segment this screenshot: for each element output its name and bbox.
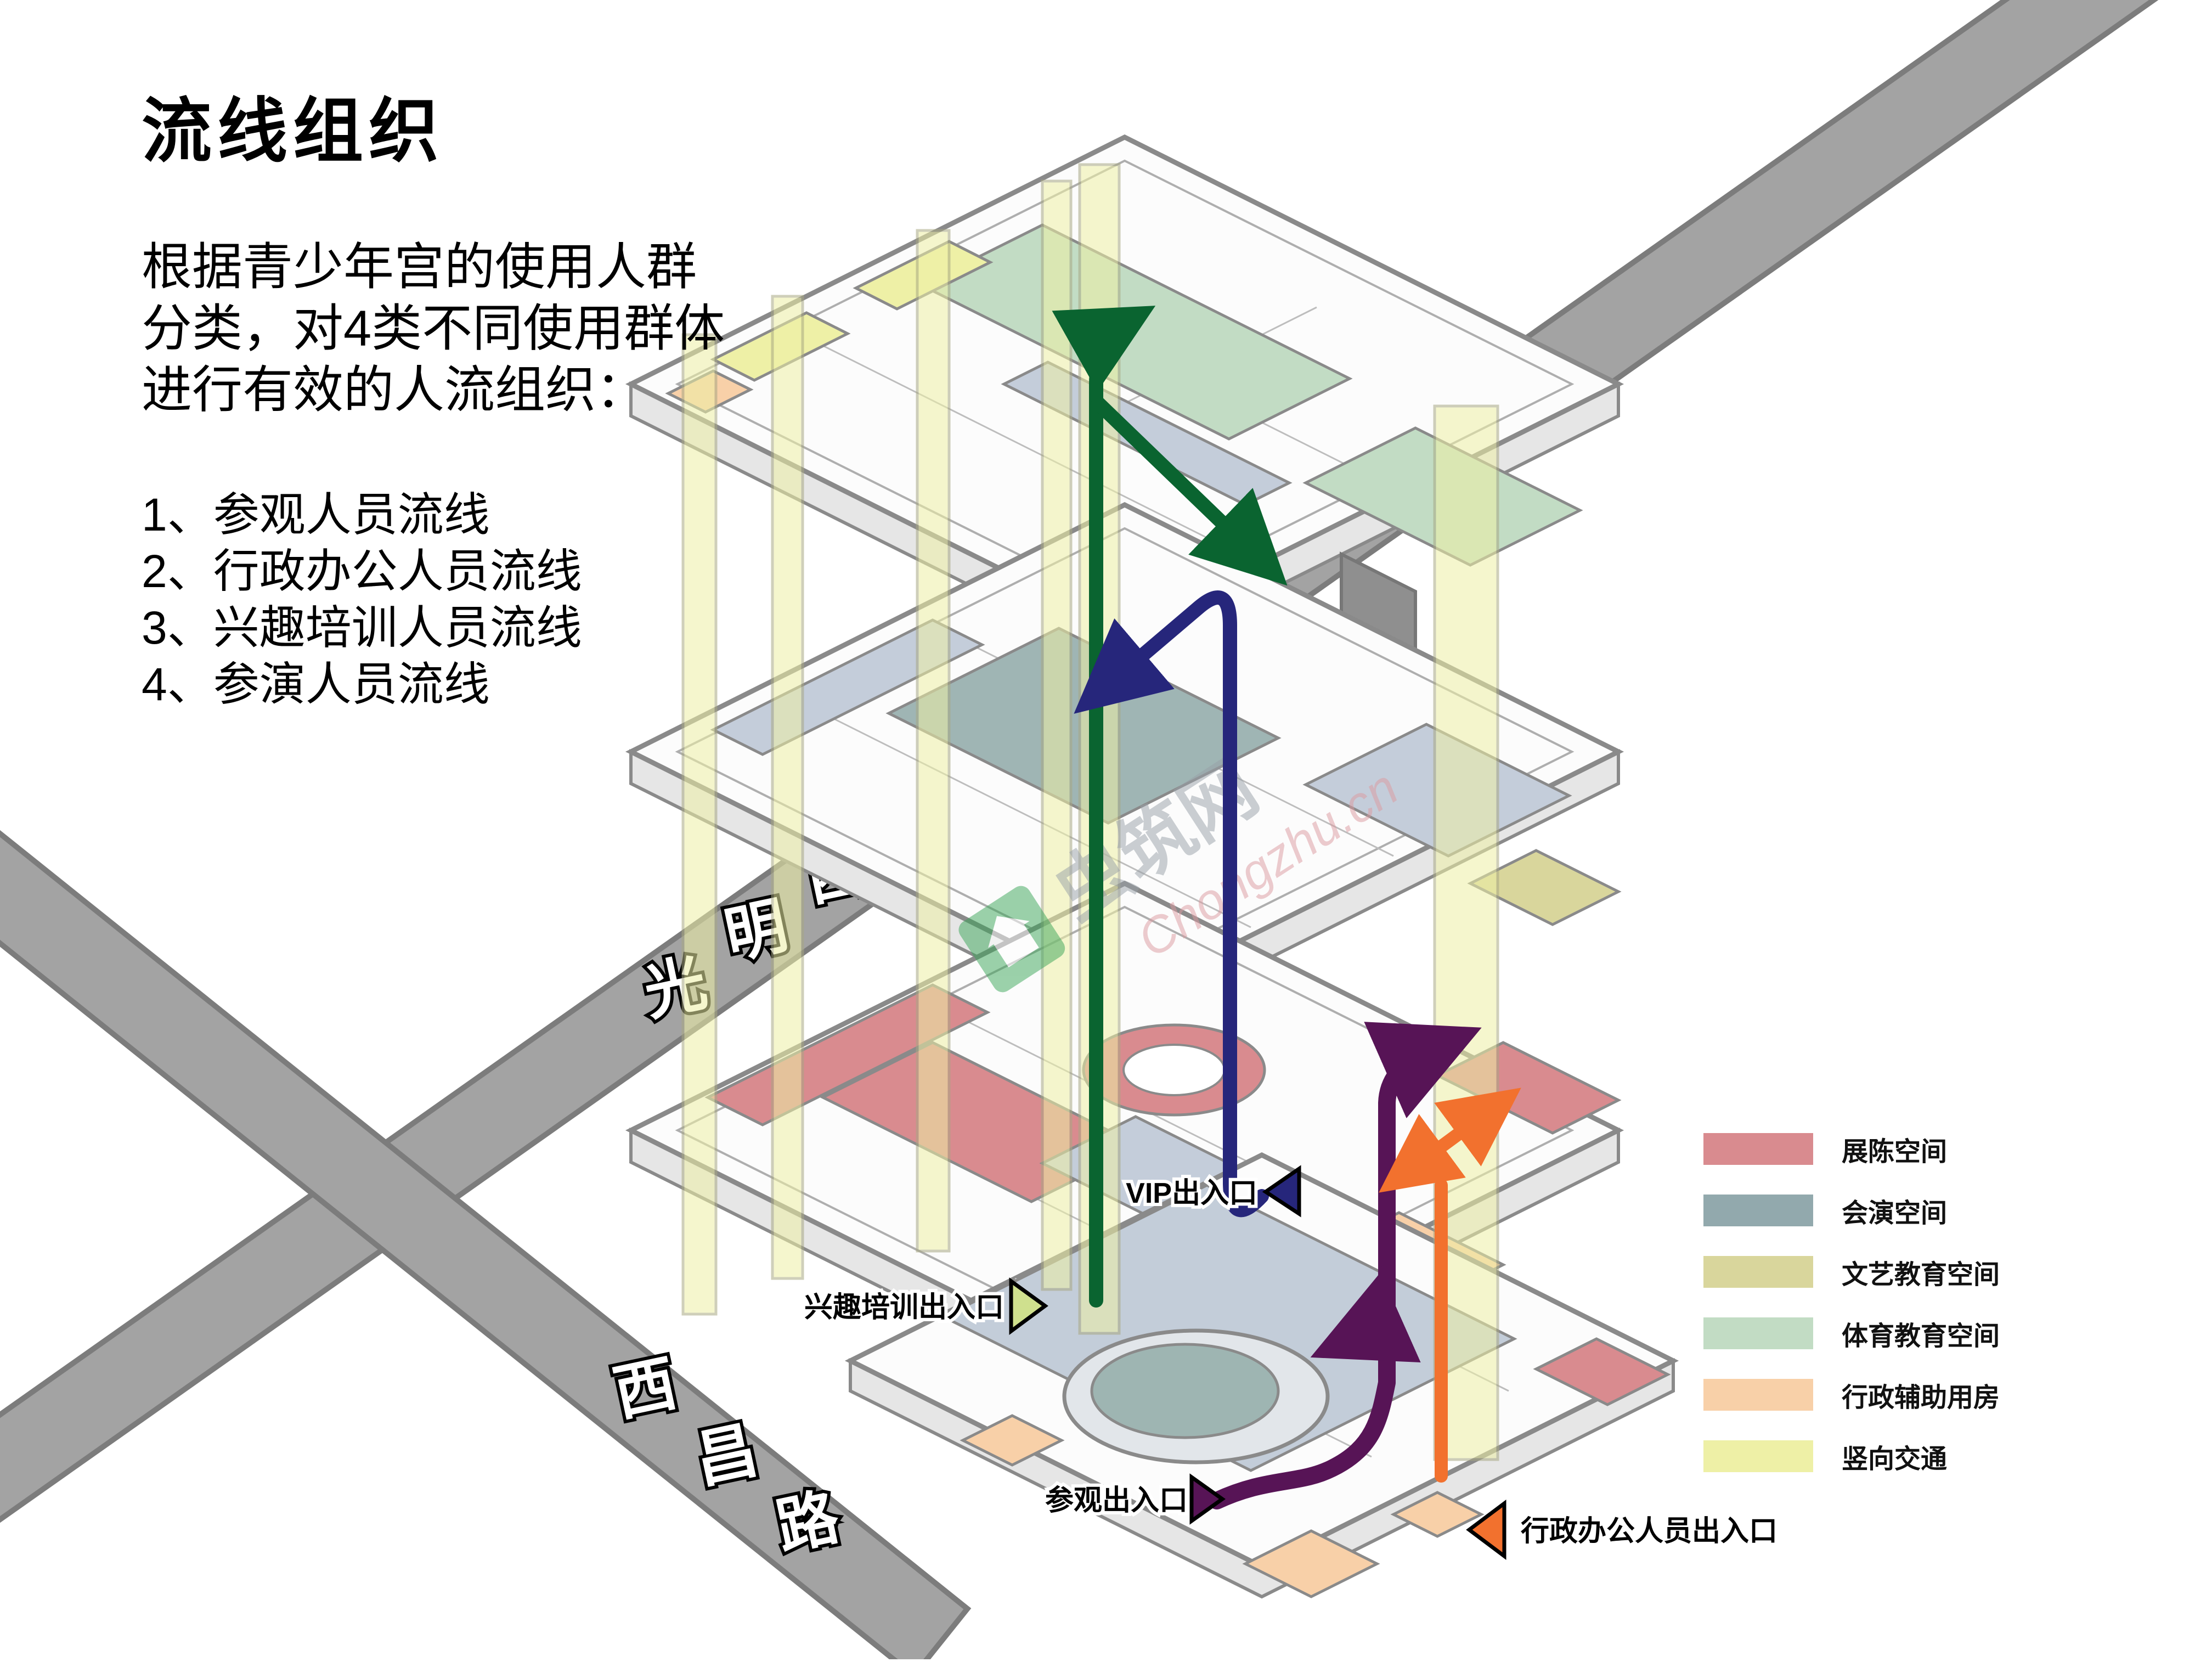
admin-entrance-label: 行政办公人员出入口 <box>1521 1515 1778 1547</box>
floor-1-theatre <box>1092 1344 1278 1438</box>
text-block: 流线组织 根据青少年宫的使用人群 分类，对4类不同使用群体 进行有效的人流组织：… <box>142 93 827 713</box>
legend-swatch-exhibition <box>1703 1133 1813 1165</box>
legend-item: 展陈空间 <box>1703 1133 2000 1165</box>
legend-item: 体育教育空间 <box>1703 1317 2000 1349</box>
intro-line: 进行有效的人流组织： <box>142 359 827 421</box>
list-item: 3、兴趣培训人员流线 <box>142 600 827 656</box>
circulation-diagram-page: 光 明 西 道 西 昌 路 <box>0 0 2212 1659</box>
flow-type-list: 1、参观人员流线 2、行政办公人员流线 3、兴趣培训人员流线 4、参演人员流线 <box>142 487 827 713</box>
legend-item: 会演空间 <box>1703 1195 2000 1226</box>
legend-swatch-sports-education <box>1703 1317 1813 1349</box>
interest-entrance-label: 兴趣培训出入口 <box>804 1292 1004 1323</box>
legend-item: 竖向交通 <box>1703 1440 2000 1472</box>
list-item: 4、参演人员流线 <box>142 656 827 713</box>
legend-label: 行政辅助用房 <box>1842 1376 2000 1414</box>
legend-swatch-arts-education <box>1703 1256 1813 1288</box>
legend-label: 展陈空间 <box>1842 1130 1947 1168</box>
vip-entrance-label: VIP出入口 <box>1126 1178 1257 1209</box>
legend-label: 体育教育空间 <box>1842 1314 2000 1353</box>
road-char: 路 <box>770 1482 845 1562</box>
floor-2-round-gallery-core <box>1124 1045 1224 1095</box>
legend-swatch-performance <box>1703 1195 1813 1226</box>
list-item: 1、参观人员流线 <box>142 487 827 543</box>
page-title: 流线组织 <box>142 93 827 171</box>
legend-label: 文艺教育空间 <box>1842 1253 2000 1291</box>
visitor-entrance-label: 参观出入口 <box>1045 1485 1188 1517</box>
legend-swatch-vertical-circulation <box>1703 1440 1813 1472</box>
legend-swatch-admin-rooms <box>1703 1379 1813 1411</box>
legend: 展陈空间 会演空间 文艺教育空间 体育教育空间 行政辅助用房 竖向交通 <box>1703 1133 2000 1502</box>
shaft <box>1042 181 1071 1289</box>
legend-item: 文艺教育空间 <box>1703 1256 2000 1288</box>
intro-line: 根据青少年宫的使用人群 <box>142 236 827 298</box>
list-item: 2、行政办公人员流线 <box>142 543 827 600</box>
intro-paragraph: 根据青少年宫的使用人群 分类，对4类不同使用群体 进行有效的人流组织： <box>142 236 827 421</box>
legend-label: 会演空间 <box>1842 1191 1947 1230</box>
shaft <box>917 230 949 1251</box>
legend-label: 竖向交通 <box>1842 1437 1947 1475</box>
intro-line: 分类，对4类不同使用群体 <box>142 298 827 359</box>
legend-item: 行政辅助用房 <box>1703 1379 2000 1411</box>
